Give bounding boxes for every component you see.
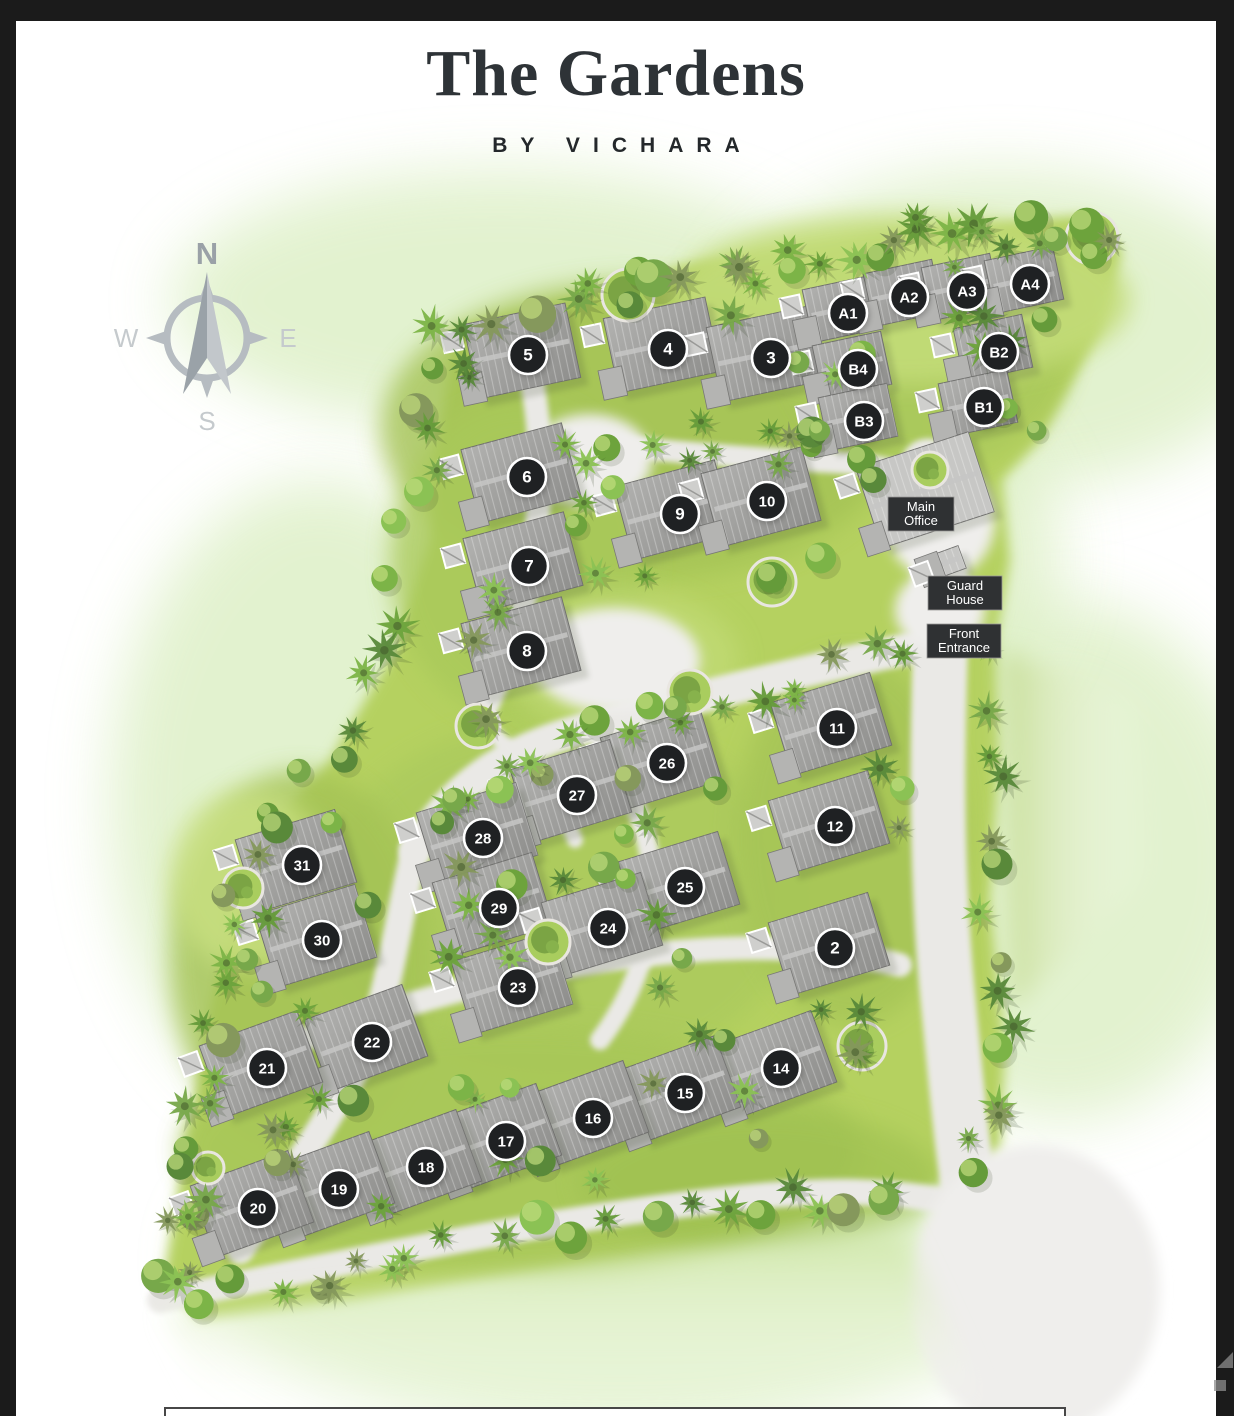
svg-text:6: 6: [522, 468, 531, 487]
lot-marker-A2: A2: [890, 278, 931, 319]
topiary-bush: [912, 452, 948, 488]
lot-marker-19: 19: [320, 1170, 361, 1211]
svg-text:28: 28: [475, 831, 492, 848]
lot-marker-26: 26: [648, 744, 689, 785]
svg-text:12: 12: [827, 819, 844, 836]
lot-marker-27: 27: [558, 776, 599, 817]
lot-marker-8: 8: [508, 632, 549, 673]
site-plan-page: The Gardens BY VICHARA: [0, 0, 1234, 1416]
lot-marker-9: 9: [661, 495, 702, 536]
guard-house-label: GuardHouse: [928, 576, 1002, 610]
page-subtitle: BY VICHARA: [16, 134, 1216, 158]
svg-text:7: 7: [524, 557, 533, 576]
compass-north: N: [196, 236, 218, 271]
svg-text:8: 8: [522, 642, 531, 661]
compass-south: S: [198, 406, 215, 436]
page-title: The Gardens: [16, 36, 1216, 112]
svg-text:A1: A1: [838, 306, 857, 323]
svg-text:Office: Office: [904, 513, 938, 528]
front-entrance-label: FrontEntrance: [927, 624, 1001, 658]
svg-text:House: House: [946, 592, 984, 607]
svg-text:B3: B3: [854, 414, 873, 431]
topiary-bush: [526, 920, 570, 964]
lot-marker-30: 30: [303, 921, 344, 962]
svg-text:22: 22: [364, 1035, 381, 1052]
lot-marker-6: 6: [508, 458, 549, 499]
lot-marker-12: 12: [816, 807, 857, 848]
svg-text:15: 15: [677, 1086, 694, 1103]
watermark-glyph: [1217, 1352, 1233, 1368]
lot-marker-B4: B4: [839, 350, 880, 391]
lot-marker-17: 17: [487, 1122, 528, 1163]
svg-text:23: 23: [510, 980, 527, 997]
lot-marker-14: 14: [762, 1049, 803, 1090]
lot-marker-A1: A1: [829, 294, 870, 335]
svg-text:24: 24: [600, 921, 617, 938]
lot-marker-21: 21: [248, 1049, 289, 1090]
lot-marker-A4: A4: [1011, 265, 1052, 306]
lot-marker-5: 5: [509, 336, 550, 377]
lot-marker-16: 16: [574, 1099, 615, 1140]
lot-marker-B3: B3: [845, 402, 886, 443]
lot-marker-29: 29: [480, 889, 521, 930]
svg-text:30: 30: [314, 933, 331, 950]
svg-text:A2: A2: [899, 290, 918, 307]
lot-marker-4: 4: [649, 330, 690, 371]
svg-text:Guard: Guard: [947, 578, 983, 593]
frame-right-bar: [1216, 0, 1234, 1416]
lot-marker-23: 23: [499, 968, 540, 1009]
svg-text:31: 31: [294, 858, 311, 875]
page-header: The Gardens BY VICHARA: [16, 36, 1216, 158]
lot-marker-3: 3: [752, 339, 793, 380]
lot-marker-7: 7: [510, 547, 551, 588]
lot-marker-2: 2: [816, 929, 857, 970]
svg-text:25: 25: [677, 880, 694, 897]
compass-west: W: [114, 323, 139, 353]
svg-text:17: 17: [498, 1134, 515, 1151]
svg-text:3: 3: [766, 349, 775, 368]
svg-text:Front: Front: [949, 626, 980, 641]
lot-marker-25: 25: [666, 868, 707, 909]
svg-text:29: 29: [491, 901, 508, 918]
main-office-label: MainOffice: [888, 497, 954, 531]
svg-text:14: 14: [773, 1061, 790, 1078]
svg-text:20: 20: [250, 1201, 267, 1218]
frame-top-bar: [0, 0, 1234, 21]
svg-text:A3: A3: [957, 284, 976, 301]
lot-marker-A3: A3: [948, 272, 989, 313]
svg-text:B1: B1: [974, 400, 993, 417]
svg-text:10: 10: [759, 494, 776, 511]
lot-marker-31: 31: [283, 846, 324, 887]
legend-box-top-edge: [164, 1407, 1066, 1416]
lot-marker-15: 15: [666, 1074, 707, 1115]
svg-text:Entrance: Entrance: [938, 640, 990, 655]
svg-text:B2: B2: [989, 345, 1008, 362]
svg-text:11: 11: [829, 721, 845, 738]
compass-east: E: [279, 323, 296, 353]
svg-text:B4: B4: [848, 362, 868, 379]
svg-text:16: 16: [585, 1111, 602, 1128]
svg-text:2: 2: [830, 939, 839, 958]
svg-text:26: 26: [659, 756, 676, 773]
lot-marker-20: 20: [239, 1189, 280, 1230]
svg-text:Main: Main: [907, 499, 935, 514]
lot-marker-22: 22: [353, 1023, 394, 1064]
svg-text:21: 21: [259, 1061, 276, 1078]
watermark-glyph: [1214, 1380, 1226, 1391]
svg-text:4: 4: [663, 340, 673, 359]
lot-marker-28: 28: [464, 819, 505, 860]
lot-marker-11: 11: [818, 709, 859, 750]
lot-marker-B2: B2: [980, 333, 1021, 374]
lot-marker-B1: B1: [965, 388, 1006, 429]
lot-marker-10: 10: [748, 482, 789, 523]
lot-marker-18: 18: [407, 1148, 448, 1189]
svg-text:5: 5: [523, 346, 532, 365]
svg-text:27: 27: [569, 788, 586, 805]
site-map: N W E S MainOfficeGuardHouseFrontEntranc…: [0, 0, 1234, 1416]
frame-left-bar: [0, 0, 16, 1416]
lot-marker-24: 24: [589, 909, 630, 950]
svg-text:19: 19: [331, 1182, 348, 1199]
svg-text:18: 18: [418, 1160, 435, 1177]
svg-text:9: 9: [675, 505, 684, 524]
svg-text:A4: A4: [1020, 277, 1040, 294]
